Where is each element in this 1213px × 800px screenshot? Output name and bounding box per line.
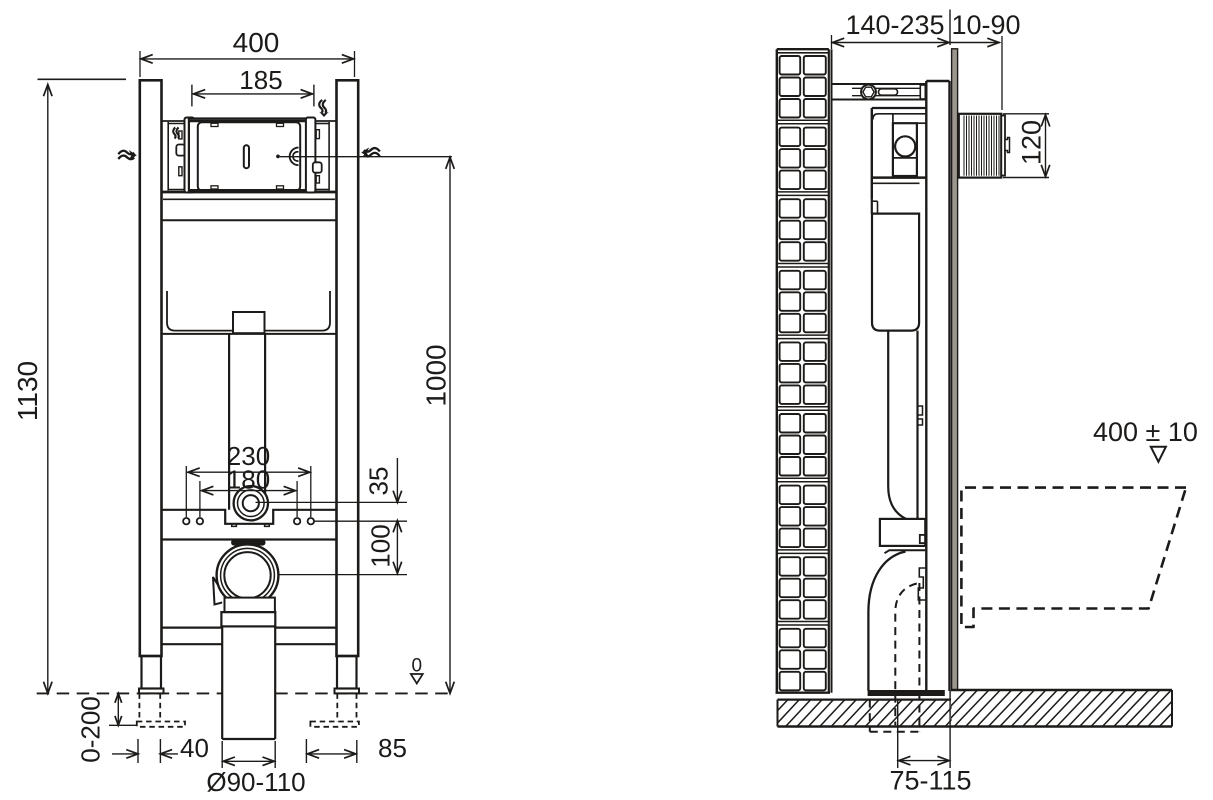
svg-text:400 ± 10: 400 ± 10 xyxy=(1093,417,1198,447)
svg-text:10-90: 10-90 xyxy=(951,10,1020,40)
svg-text:1000: 1000 xyxy=(421,344,452,406)
svg-text:1130: 1130 xyxy=(12,361,43,421)
svg-text:120: 120 xyxy=(1017,120,1047,165)
svg-text:Ø90-110: Ø90-110 xyxy=(206,767,305,797)
svg-text:400: 400 xyxy=(233,27,280,58)
svg-text:185: 185 xyxy=(239,65,282,95)
svg-text:40: 40 xyxy=(180,733,209,763)
svg-text:35: 35 xyxy=(364,467,394,496)
svg-text:100: 100 xyxy=(366,524,396,567)
svg-text:75-115: 75-115 xyxy=(889,766,971,796)
svg-text:140-235: 140-235 xyxy=(845,10,944,40)
svg-text:0-200: 0-200 xyxy=(76,696,106,763)
svg-text:180: 180 xyxy=(227,465,270,495)
svg-text:85: 85 xyxy=(378,733,407,763)
